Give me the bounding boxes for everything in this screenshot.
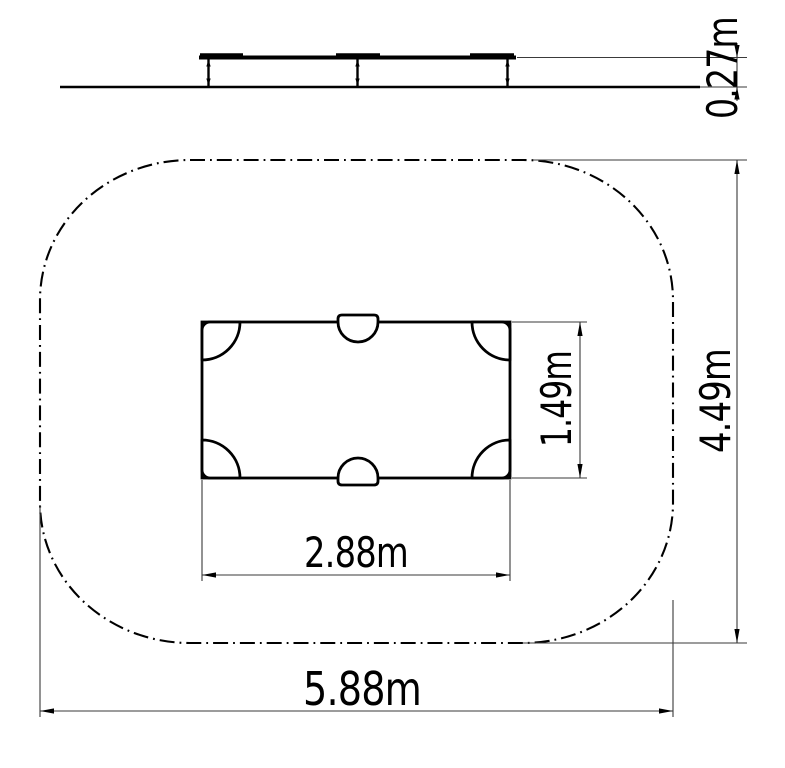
- dimension-label-equipment-width: 2.88m: [304, 528, 408, 577]
- dimension-equipment-width: 2.88m: [202, 480, 510, 581]
- support-leg-right: [505, 59, 509, 86]
- equipment-outline: [202, 322, 510, 478]
- edge-bump-bottom: [338, 458, 378, 485]
- arrowhead: [202, 572, 216, 577]
- support-leg-left: [206, 59, 210, 86]
- technical-drawing-sheet: 0.27m 1.49m 2.88m: [0, 0, 785, 768]
- dimension-equipment-depth: 1.49m: [512, 322, 587, 478]
- dimension-platform-height: 0.27m: [517, 17, 747, 119]
- dimension-label-safety-zone-depth: 4.49m: [691, 349, 740, 453]
- arrowhead: [40, 708, 54, 713]
- side-elevation-view: [60, 55, 700, 87]
- arrowhead: [734, 629, 739, 643]
- edge-bump-top: [338, 315, 378, 342]
- drawing-canvas: 0.27m 1.49m 2.88m: [0, 0, 785, 768]
- support-leg-middle: [355, 59, 359, 86]
- arrowhead: [577, 322, 582, 336]
- dimension-label-safety-zone-width: 5.88m: [303, 662, 421, 716]
- dimension-label-platform-height: 0.27m: [698, 17, 747, 119]
- arrowhead: [659, 708, 673, 713]
- arrowhead: [734, 160, 739, 174]
- arrowhead: [496, 572, 510, 577]
- dimension-label-equipment-depth: 1.49m: [532, 351, 581, 447]
- arrowhead: [577, 464, 582, 478]
